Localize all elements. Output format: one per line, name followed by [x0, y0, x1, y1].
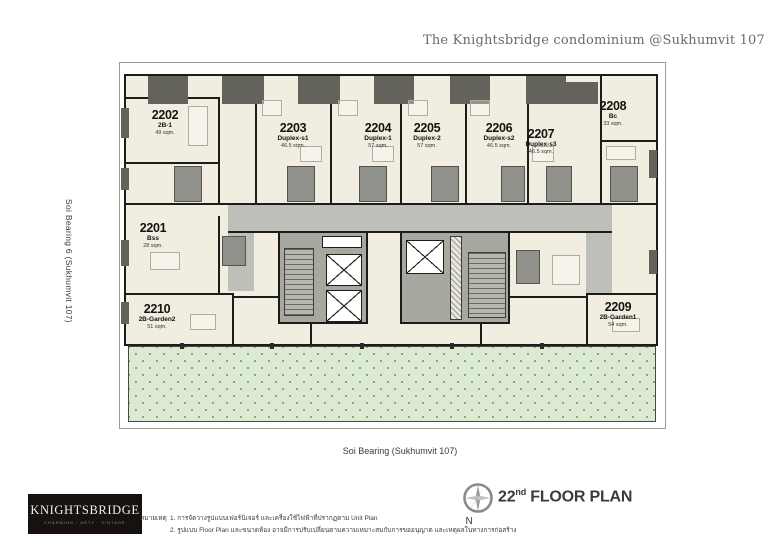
bathroom-block [431, 166, 459, 202]
note-line-1: 1. การจัดวางรูปแบบเฟอร์นิเจอร์ และเครื่อ… [170, 513, 590, 523]
unit-type: 2B-Garden2 [123, 317, 191, 324]
elevator-shaft [326, 254, 362, 286]
balcony-block [222, 76, 264, 104]
unit-type: 2B-1 [134, 123, 196, 130]
floor-label: FLOOR PLAN [530, 488, 632, 505]
unit-number: 2208 [584, 100, 642, 113]
street-label-left: Soi Bearing 6 (Sukhumvit 107) [64, 186, 74, 336]
page-title: The Knightsbridge condominium @Sukhumvit… [345, 33, 765, 48]
garden-post [360, 343, 364, 349]
unit-type: Bc [584, 114, 642, 121]
wall [510, 296, 586, 298]
street-label-bottom: Soi Bearing (Sukhumvit 107) [300, 446, 500, 456]
bathroom-block [287, 166, 315, 202]
elevator-shaft [406, 240, 444, 274]
bathroom-block [610, 166, 638, 202]
unit-number: 2201 [122, 222, 184, 235]
wall [232, 293, 234, 346]
bathroom-block [174, 166, 202, 202]
unit-label-2207: 2207 Duplex-s3 46.5 sqm. [508, 128, 574, 156]
unit-area: 28 sqm. [122, 244, 184, 250]
unit-label-2201: 2201 Bss 28 sqm. [122, 222, 184, 250]
unit-type: Duplex-2 [395, 136, 459, 143]
furniture [408, 100, 428, 116]
logo-tagline: CHARMING · ARTY · VINTAGE [44, 520, 125, 525]
bathroom-block [222, 236, 246, 266]
bathroom-block [516, 250, 540, 284]
balcony-block [298, 76, 340, 104]
unit-label-2210: 2210 2B-Garden2 51 sqm. [123, 303, 191, 331]
furniture [190, 314, 216, 330]
unit-area: 46.5 sqm. [508, 150, 574, 156]
bathroom-block [501, 166, 525, 202]
furniture [552, 255, 580, 285]
wall [124, 203, 658, 205]
unit-number: 2210 [123, 303, 191, 316]
unit-label-2203: 2203 Duplex-s1 46.5 sqm. [261, 122, 325, 150]
elevator-shaft [326, 290, 362, 322]
stair-left [284, 248, 314, 316]
unit-number: 2202 [134, 109, 196, 122]
bathroom-block [546, 166, 572, 202]
stair-right [468, 252, 506, 318]
wall [310, 324, 312, 346]
edge-block [649, 150, 657, 178]
elevator-lobby [322, 236, 362, 248]
edge-block [649, 250, 657, 274]
balcony-block [526, 76, 566, 104]
wall [124, 162, 218, 164]
garden-post [180, 343, 184, 349]
unit-area: 54 sqm. [584, 323, 652, 329]
unit-area: 51 sqm. [123, 325, 191, 331]
edge-block [121, 168, 129, 190]
furniture [606, 146, 636, 160]
wall [600, 74, 602, 203]
garden-post [270, 343, 274, 349]
unit-label-2209: 2209 2B-Garden1 54 sqm. [584, 301, 652, 329]
unit-area: 57 sqm. [395, 144, 459, 150]
unit-area: 49 sqm. [134, 131, 196, 137]
corridor [228, 203, 612, 233]
unit-number: 2205 [395, 122, 459, 135]
unit-type: Duplex-s1 [261, 136, 325, 143]
shaft-hatch [450, 236, 462, 320]
wall [232, 296, 278, 298]
floor-number: 22 [498, 488, 515, 505]
unit-label-2202: 2202 2B-1 49 sqm. [134, 109, 196, 137]
notes-heading: หมายเหตุ [140, 513, 167, 523]
furniture [470, 100, 490, 116]
garden-post [540, 343, 544, 349]
edge-block [121, 108, 129, 138]
unit-label-2208: 2208 Bc 33 sqm. [584, 100, 642, 128]
unit-type: Duplex-s3 [508, 142, 574, 149]
unit-type: Bss [122, 236, 184, 243]
floor-plan-title: 22nd FLOOR PLAN [498, 487, 632, 506]
corridor-stub-right [586, 233, 612, 293]
unit-label-2205: 2205 Duplex-2 57 sqm. [395, 122, 459, 150]
wall [218, 216, 220, 293]
unit-number: 2209 [584, 301, 652, 314]
wall [480, 324, 482, 346]
wall [124, 293, 232, 295]
compass-icon: N [456, 479, 500, 527]
wall [218, 97, 220, 203]
unit-area: 46.5 sqm. [261, 144, 325, 150]
note-line-2: 2. รูปแบบ Floor Plan และขนาดห้อง อาจมีกา… [170, 525, 630, 535]
unit-type: 2B-Garden1 [584, 315, 652, 322]
unit-area: 33 sqm. [584, 122, 642, 128]
wall [600, 140, 658, 142]
garden-area [128, 346, 656, 422]
bathroom-block [359, 166, 387, 202]
garden-post [450, 343, 454, 349]
compass-north-label: N [466, 516, 473, 527]
floor-ordinal: nd [515, 487, 526, 497]
balcony-block [148, 76, 188, 104]
furniture [150, 252, 180, 270]
furniture [338, 100, 358, 116]
wall [586, 293, 658, 295]
knightsbridge-logo: KNIGHTSBRIDGE CHARMING · ARTY · VINTAGE [28, 494, 142, 534]
furniture [262, 100, 282, 116]
unit-number: 2207 [508, 128, 574, 141]
logo-name: KNIGHTSBRIDGE [30, 503, 139, 518]
unit-number: 2203 [261, 122, 325, 135]
